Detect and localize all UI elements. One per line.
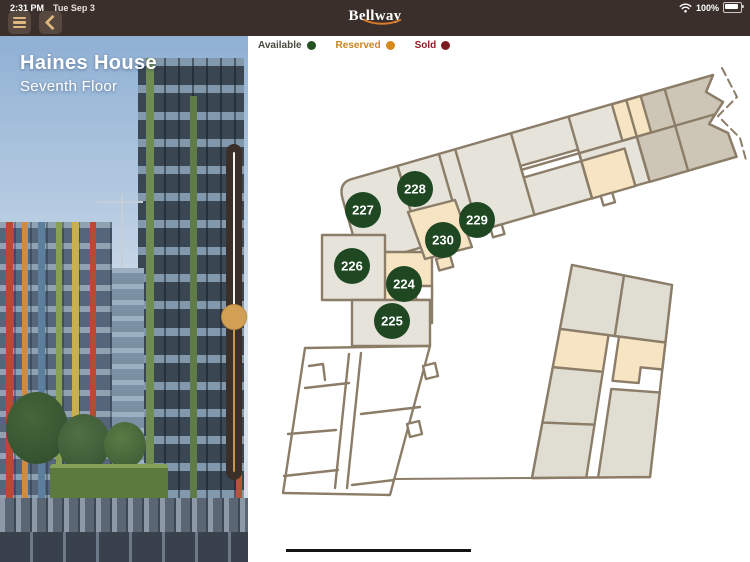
photo-green-stripe [190, 96, 197, 516]
photo-accent-stripe [22, 222, 28, 512]
photo-green-stripe [146, 58, 154, 516]
svg-text:224: 224 [393, 277, 415, 292]
unit-marker-230[interactable]: 230 [425, 222, 461, 258]
floor-slider-track[interactable] [226, 144, 242, 480]
floor-slider-handle[interactable] [221, 304, 247, 330]
svg-text:226: 226 [341, 259, 363, 274]
building-photo-panel: Haines House Seventh Floor [0, 36, 248, 562]
wifi-icon [679, 3, 692, 13]
svg-text:225: 225 [381, 314, 403, 329]
floor-slider-line-lower [233, 317, 235, 472]
battery-icon [723, 2, 742, 13]
unit-marker-224[interactable]: 224 [386, 266, 422, 302]
hamburger-icon [13, 17, 26, 29]
photo-accent-stripe [38, 222, 45, 512]
chevron-left-icon [44, 15, 60, 31]
svg-text:227: 227 [352, 203, 374, 218]
floorplan-panel: 227228229230226224225 AvailableReservedS… [248, 36, 750, 562]
battery-percent: 100% [696, 3, 719, 13]
legend-item-sold: Sold [415, 40, 451, 51]
logo-swoosh-icon [362, 19, 402, 25]
tree [104, 422, 146, 468]
svg-text:230: 230 [432, 233, 454, 248]
status-right-cluster: 100% [679, 2, 742, 13]
crane-icon [121, 194, 123, 270]
building-title: Haines House [20, 52, 157, 75]
floor-subtitle: Seventh Floor [20, 78, 117, 95]
legend-label: Sold [415, 40, 437, 51]
svg-text:229: 229 [466, 213, 488, 228]
legend: AvailableReservedSold [258, 40, 450, 51]
crane-icon [97, 201, 143, 203]
legend-dot [441, 41, 450, 50]
unit-marker-226[interactable]: 226 [334, 248, 370, 284]
back-button[interactable] [39, 11, 62, 34]
legend-item-reserved: Reserved [336, 40, 395, 51]
legend-label: Reserved [336, 40, 381, 51]
legend-label: Available [258, 40, 302, 51]
scale-bar [286, 549, 471, 552]
floor-slider-line-upper [233, 152, 235, 317]
legend-item-available: Available [258, 40, 316, 51]
photo-accent-stripe [6, 222, 13, 512]
header-bar: 2:31 PM Tue Sep 3 Bellway 100% [0, 0, 750, 36]
app-screen: 2:31 PM Tue Sep 3 Bellway 100% [0, 0, 750, 562]
unit-marker-228[interactable]: 228 [397, 171, 433, 207]
unit-marker-229[interactable]: 229 [459, 202, 495, 238]
photo-storefront [0, 498, 248, 532]
photo-plaza-lower [0, 532, 248, 562]
svg-text:228: 228 [404, 182, 426, 197]
legend-dot [386, 41, 395, 50]
legend-dot [307, 41, 316, 50]
menu-button[interactable] [8, 11, 31, 34]
unit-marker-227[interactable]: 227 [345, 192, 381, 228]
unit-marker-225[interactable]: 225 [374, 303, 410, 339]
floorplan-drawing: 227228229230226224225 [248, 36, 750, 562]
